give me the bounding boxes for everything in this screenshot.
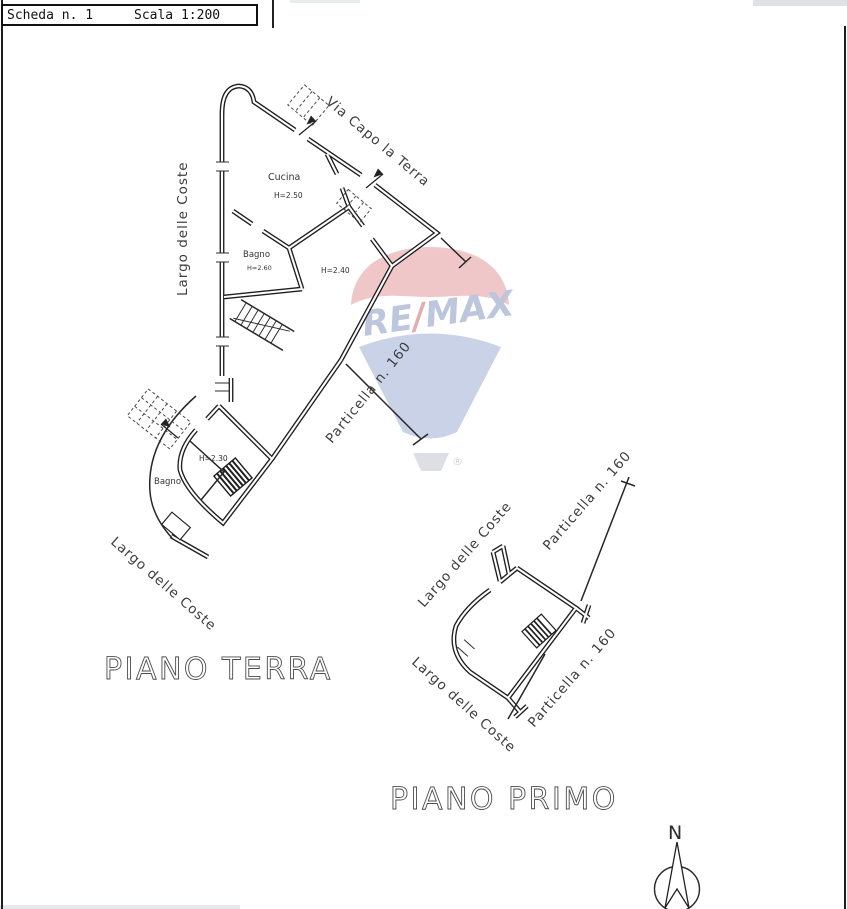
scanned-floorplan-page: Scheda n. 1 Scala 1:200 bbox=[0, 0, 847, 909]
room-height-lower: H=2.30 bbox=[199, 454, 228, 463]
staircase-middle bbox=[230, 300, 294, 351]
piano-primo-plan: Largo delle Coste Particella n. 160 Larg… bbox=[390, 448, 635, 817]
street-label-largo-delle-coste-left: Largo delle Coste bbox=[175, 161, 191, 296]
north-label: N bbox=[668, 822, 682, 844]
parcel-label-particella-160-pp-bottom: Particella n. 160 bbox=[525, 625, 620, 731]
remax-balloon-watermark: RE/MAX ® bbox=[351, 247, 518, 471]
room-label-bagno2: Bagno bbox=[154, 477, 181, 487]
street-label-largo-delle-coste-pp-bottom: Largo delle Coste bbox=[408, 654, 519, 756]
piano-primo-window bbox=[457, 640, 474, 657]
balloon-basket bbox=[413, 453, 449, 471]
dashed-steps-lower-entrance bbox=[127, 389, 190, 449]
room-label-bagno1: Bagno bbox=[243, 250, 270, 260]
floor-title-piano-primo: PIANO PRIMO bbox=[390, 782, 618, 817]
entrance-arrow-door1 bbox=[299, 116, 316, 136]
lower-unit-details bbox=[150, 396, 224, 540]
north-arrow bbox=[665, 842, 689, 908]
street-label-largo-delle-coste-bottom: Largo delle Coste bbox=[107, 534, 219, 634]
north-compass: N bbox=[655, 822, 700, 909]
floor-title-piano-terra: PIANO TERRA bbox=[104, 652, 333, 687]
room-height-bagno1: H=2.60 bbox=[247, 264, 272, 272]
floorplan-drawing: RE/MAX ® bbox=[0, 0, 847, 909]
room-height-cucina: H=2.50 bbox=[274, 191, 303, 200]
room-height-main: H=2.40 bbox=[321, 266, 350, 275]
registered-trademark-symbol: ® bbox=[452, 455, 463, 468]
street-label-largo-delle-coste-pp-top: Largo delle Coste bbox=[415, 499, 515, 611]
entrance-arrow-door2 bbox=[366, 169, 383, 189]
room-label-cucina: Cucina bbox=[268, 172, 300, 183]
